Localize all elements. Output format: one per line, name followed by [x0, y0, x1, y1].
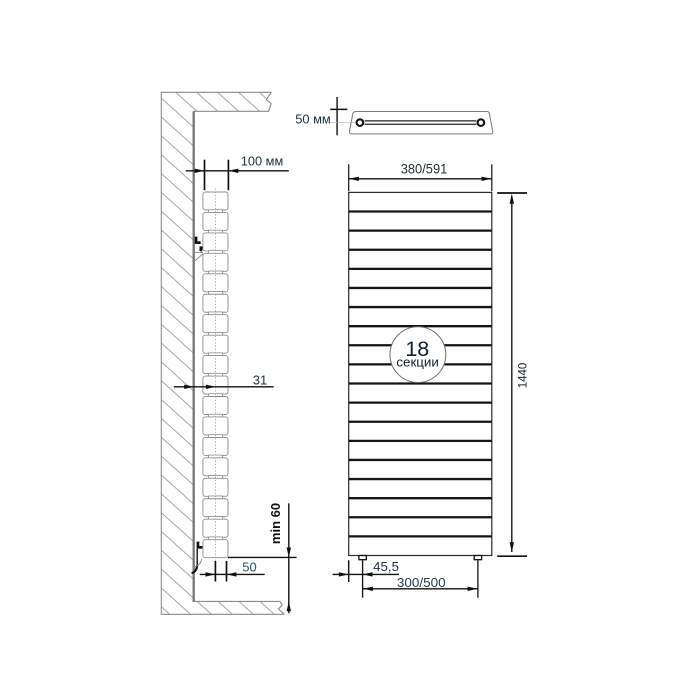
svg-text:300/500: 300/500 [397, 575, 446, 590]
svg-text:31: 31 [253, 372, 267, 387]
svg-text:секции: секции [396, 355, 439, 370]
svg-text:min 60: min 60 [268, 503, 283, 544]
svg-text:100 мм: 100 мм [241, 155, 284, 169]
svg-text:1440: 1440 [517, 363, 529, 389]
svg-text:380/591: 380/591 [401, 160, 448, 176]
svg-text:50: 50 [242, 560, 256, 575]
svg-text:45,5: 45,5 [373, 559, 399, 574]
svg-text:50 мм: 50 мм [295, 112, 331, 126]
